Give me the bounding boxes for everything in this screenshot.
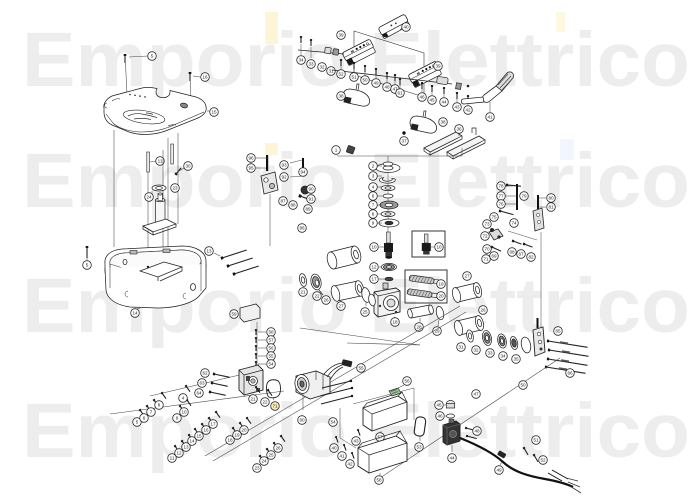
svg-text:38: 38	[338, 94, 344, 99]
svg-text:40: 40	[403, 25, 409, 30]
svg-text:43: 43	[353, 439, 359, 444]
svg-text:69: 69	[491, 254, 497, 259]
svg-text:55: 55	[268, 354, 274, 359]
svg-text:18: 18	[392, 320, 398, 325]
svg-text:20: 20	[241, 428, 247, 433]
svg-text:32: 32	[319, 65, 325, 70]
svg-text:23: 23	[254, 466, 260, 471]
svg-text:75: 75	[491, 215, 497, 220]
svg-text:44: 44	[441, 100, 447, 105]
svg-text:51: 51	[533, 438, 539, 443]
svg-text:55: 55	[358, 366, 364, 371]
svg-text:46: 46	[437, 414, 443, 419]
svg-text:92: 92	[281, 175, 287, 180]
svg-text:34: 34	[500, 354, 506, 359]
svg-text:10: 10	[436, 245, 442, 250]
svg-text:89: 89	[305, 207, 311, 212]
svg-text:26: 26	[275, 446, 281, 451]
svg-text:8: 8	[158, 403, 161, 408]
svg-text:14: 14	[189, 439, 195, 444]
svg-text:15: 15	[196, 434, 202, 439]
svg-text:45: 45	[429, 98, 435, 103]
svg-text:53: 53	[416, 445, 422, 450]
svg-text:66: 66	[567, 371, 573, 376]
svg-text:49: 49	[496, 468, 502, 473]
svg-text:64: 64	[196, 391, 202, 396]
svg-text:10: 10	[181, 410, 187, 415]
svg-text:51: 51	[351, 75, 357, 80]
svg-text:48: 48	[384, 85, 390, 90]
svg-text:50: 50	[362, 78, 368, 83]
svg-text:18: 18	[227, 438, 233, 443]
svg-text:70: 70	[484, 247, 490, 252]
svg-text:17: 17	[371, 277, 377, 282]
svg-text:46: 46	[419, 95, 425, 100]
svg-text:6: 6	[372, 194, 375, 199]
svg-text:7: 7	[372, 203, 375, 208]
svg-text:26: 26	[323, 298, 329, 303]
svg-text:29: 29	[434, 329, 440, 334]
svg-text:71: 71	[272, 404, 278, 409]
svg-text:44: 44	[449, 456, 455, 461]
svg-text:54: 54	[268, 362, 274, 367]
svg-text:17: 17	[210, 422, 216, 427]
svg-text:25: 25	[362, 310, 368, 315]
svg-text:76: 76	[498, 202, 504, 207]
svg-text:56: 56	[404, 379, 410, 384]
svg-text:9: 9	[372, 221, 375, 226]
svg-text:5: 5	[151, 54, 154, 59]
svg-text:16: 16	[202, 75, 208, 80]
svg-text:87: 87	[280, 199, 286, 204]
svg-text:77: 77	[498, 194, 504, 199]
svg-text:42: 42	[347, 462, 353, 467]
svg-text:3: 3	[372, 174, 375, 179]
svg-text:33: 33	[308, 62, 314, 67]
svg-text:22: 22	[262, 400, 268, 405]
svg-text:4: 4	[182, 396, 185, 401]
svg-text:26: 26	[480, 308, 486, 313]
svg-text:21: 21	[300, 290, 306, 295]
svg-text:73: 73	[484, 222, 490, 227]
svg-text:5: 5	[86, 263, 89, 268]
svg-text:90: 90	[308, 187, 314, 192]
svg-text:39: 39	[338, 33, 344, 38]
svg-text:47: 47	[473, 392, 479, 397]
svg-text:57: 57	[268, 338, 274, 343]
svg-text:72: 72	[482, 234, 488, 239]
svg-text:62: 62	[202, 371, 208, 376]
svg-text:13: 13	[183, 445, 189, 450]
svg-text:36: 36	[456, 127, 462, 132]
svg-text:45: 45	[436, 403, 442, 408]
svg-text:21: 21	[250, 397, 256, 402]
svg-text:5: 5	[136, 420, 139, 425]
svg-text:82: 82	[528, 255, 534, 260]
svg-text:19: 19	[438, 282, 444, 287]
svg-text:25: 25	[268, 453, 274, 458]
svg-text:27: 27	[338, 304, 344, 309]
svg-text:63: 63	[199, 381, 205, 386]
svg-text:48: 48	[474, 429, 480, 434]
svg-text:42: 42	[465, 108, 471, 113]
svg-text:22: 22	[314, 294, 320, 299]
svg-text:74: 74	[511, 221, 517, 226]
svg-text:30: 30	[185, 164, 191, 169]
svg-text:54: 54	[330, 420, 336, 425]
svg-text:7: 7	[150, 410, 153, 415]
svg-text:24: 24	[146, 195, 152, 200]
svg-text:12: 12	[176, 451, 182, 456]
svg-text:Emporio Elettrico: Emporio Elettrico	[22, 388, 690, 474]
svg-text:6: 6	[143, 416, 146, 421]
svg-text:41: 41	[339, 454, 345, 459]
svg-text:Emporio Elettrico: Emporio Elettrico	[22, 138, 690, 224]
svg-text:14: 14	[132, 311, 138, 316]
svg-text:94: 94	[300, 170, 306, 175]
svg-text:33: 33	[487, 351, 493, 356]
svg-text:10: 10	[371, 245, 377, 250]
svg-text:43: 43	[454, 105, 460, 110]
svg-text:61: 61	[397, 91, 403, 96]
svg-text:37: 37	[401, 139, 407, 144]
svg-text:40: 40	[331, 446, 337, 451]
svg-text:23: 23	[172, 186, 178, 191]
svg-text:2: 2	[372, 164, 375, 169]
svg-text:60: 60	[299, 418, 305, 423]
svg-text:8: 8	[372, 212, 375, 217]
svg-text:58: 58	[268, 330, 274, 335]
svg-text:32: 32	[473, 348, 479, 353]
svg-text:34: 34	[298, 58, 304, 63]
svg-text:52: 52	[338, 72, 344, 77]
svg-text:58: 58	[376, 478, 382, 483]
svg-text:56: 56	[268, 346, 274, 351]
svg-text:80: 80	[548, 196, 554, 201]
svg-text:31: 31	[328, 69, 334, 74]
svg-text:16: 16	[203, 428, 209, 433]
svg-text:86: 86	[299, 226, 305, 231]
svg-text:96: 96	[248, 156, 254, 161]
svg-text:95: 95	[248, 166, 254, 171]
svg-text:4: 4	[372, 185, 375, 190]
svg-text:15: 15	[211, 110, 217, 115]
svg-text:93: 93	[281, 163, 287, 168]
svg-text:19: 19	[234, 433, 240, 438]
svg-text:11: 11	[158, 159, 163, 164]
svg-text:67: 67	[518, 252, 524, 257]
svg-text:11: 11	[170, 456, 175, 461]
svg-text:68: 68	[509, 250, 515, 255]
svg-text:39: 39	[435, 64, 441, 69]
svg-text:91: 91	[308, 197, 314, 202]
svg-text:79: 79	[521, 194, 527, 199]
svg-text:31: 31	[458, 345, 464, 350]
svg-text:49: 49	[373, 81, 379, 86]
svg-text:81: 81	[548, 205, 554, 210]
svg-text:52: 52	[540, 458, 546, 463]
svg-text:78: 78	[498, 184, 504, 189]
svg-text:88: 88	[290, 203, 296, 208]
svg-text:9: 9	[176, 416, 179, 421]
svg-text:1: 1	[335, 148, 338, 153]
svg-text:65: 65	[555, 329, 561, 334]
svg-text:50: 50	[520, 383, 526, 388]
svg-text:38: 38	[440, 120, 446, 125]
svg-text:27: 27	[464, 274, 470, 279]
svg-text:13: 13	[206, 249, 212, 254]
svg-text:35: 35	[513, 357, 519, 362]
svg-text:24: 24	[261, 459, 267, 464]
svg-text:59: 59	[231, 312, 237, 317]
svg-text:41: 41	[487, 115, 493, 120]
svg-text:20: 20	[438, 294, 444, 299]
svg-text:12: 12	[371, 265, 377, 270]
svg-text:71: 71	[483, 257, 489, 262]
